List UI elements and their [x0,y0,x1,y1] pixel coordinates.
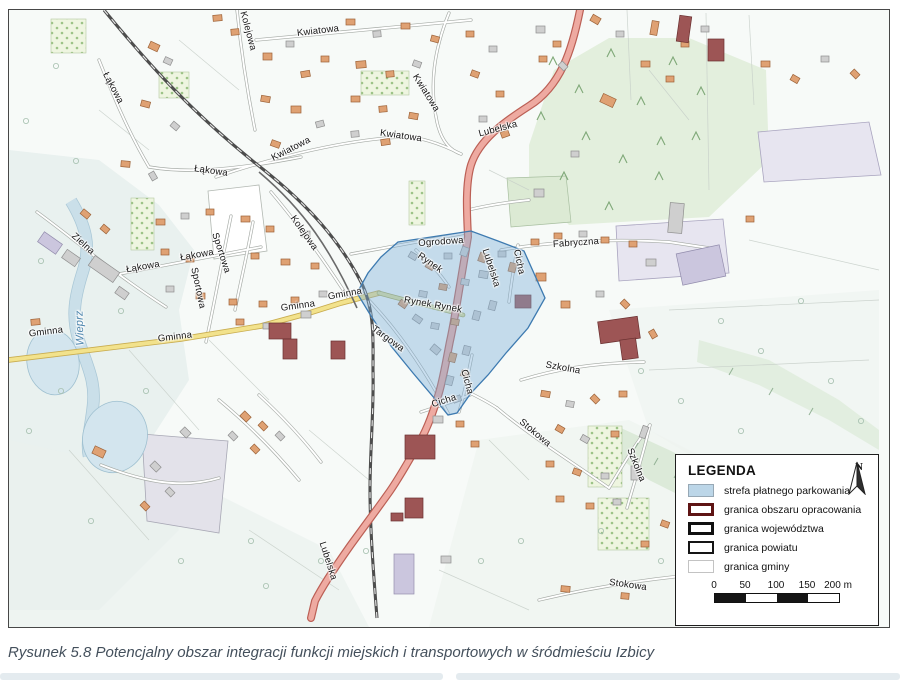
document-page: KwiatowaKolejowaKwiatowaLubelskaKwiatowa… [0,0,900,680]
street-label: Zielna [69,231,96,257]
street-label: Rynek Rynek [403,294,463,315]
scale-tick: 0 [711,580,717,591]
street-label: Lubelska [477,119,518,140]
street-label: Wieprz [73,310,86,346]
street-label: Kwiatowa [296,23,339,39]
legend-item-label: granica województwa [724,523,824,535]
street-label: Kwiatowa [410,72,442,114]
street-label: Gminna [280,298,316,314]
scale-segment [808,594,839,602]
street-label: Łąkowa [100,70,126,105]
street-label: Rynek [415,250,444,275]
street-label: Łąkowa [179,247,214,264]
street-label: Łąkowa [193,163,228,179]
street-label: Kwiatowa [270,135,313,164]
street-label: Lubelska [480,247,503,288]
legend-swatch-zone [688,484,714,497]
street-label: Sportowa [188,266,207,309]
scale-segment [746,594,777,602]
scale-tick: 200 m [824,580,852,591]
map-legend: LEGENDA strefa płatnego parkowaniagranic… [675,454,879,626]
street-label: Kolejowa [237,10,258,52]
street-label: Szkolna [624,447,647,484]
street-label: Ogrodowa [418,235,464,249]
scale-segment [777,594,808,602]
scale-segment [715,594,746,602]
legend-item: granica obszaru opracowania [688,503,868,516]
street-label: Fabryczna [553,236,600,250]
legend-item: granica gminy [688,560,868,573]
street-label: Stokowa [517,417,553,450]
legend-item: granica województwa [688,522,868,535]
legend-item-label: strefa płatnego parkowania [724,485,850,497]
next-content-fragment-left [0,673,443,680]
street-label: Kwiatowa [379,128,422,145]
legend-item-label: granica obszaru opracowania [724,504,861,516]
scale-tick: 50 [739,580,750,591]
street-label: Cicha [458,368,475,395]
street-label: Lubelska [317,540,340,581]
north-arrow-icon [847,461,867,495]
scale-tick: 150 [799,580,816,591]
legend-swatch-gmina [688,560,714,573]
legend-item-label: granica powiatu [724,542,798,554]
legend-swatch-area [688,503,714,516]
scale-bar: 050100150200 m [688,580,868,610]
legend-items: strefa płatnego parkowaniagranica obszar… [688,484,868,573]
figure-caption: Rysunek 5.8 Potencjalny obszar integracj… [8,644,888,661]
street-label: Cicha [511,248,527,275]
legend-item: strefa płatnego parkowania [688,484,868,497]
street-label: Łąkowa [125,259,160,276]
street-label: Gminna [327,286,363,303]
legend-item: granica powiatu [688,541,868,554]
street-label: Targowa [370,324,407,355]
legend-item-label: granica gminy [724,561,789,573]
street-label: Gminna [28,324,64,339]
street-label: Szkolna [545,360,582,377]
north-arrow: N [847,461,871,473]
legend-swatch-voivodeship [688,522,714,535]
next-content-fragment-right [456,673,900,680]
street-label: Gminna [157,329,193,344]
legend-swatch-powiat [688,541,714,554]
street-label: Kolejowa [288,213,320,252]
street-label: Cicha [430,392,457,410]
street-label: Stokowa [608,577,647,593]
scale-tick: 100 [768,580,785,591]
map-figure: KwiatowaKolejowaKwiatowaLubelskaKwiatowa… [8,9,890,628]
legend-title: LEGENDA [688,463,868,478]
